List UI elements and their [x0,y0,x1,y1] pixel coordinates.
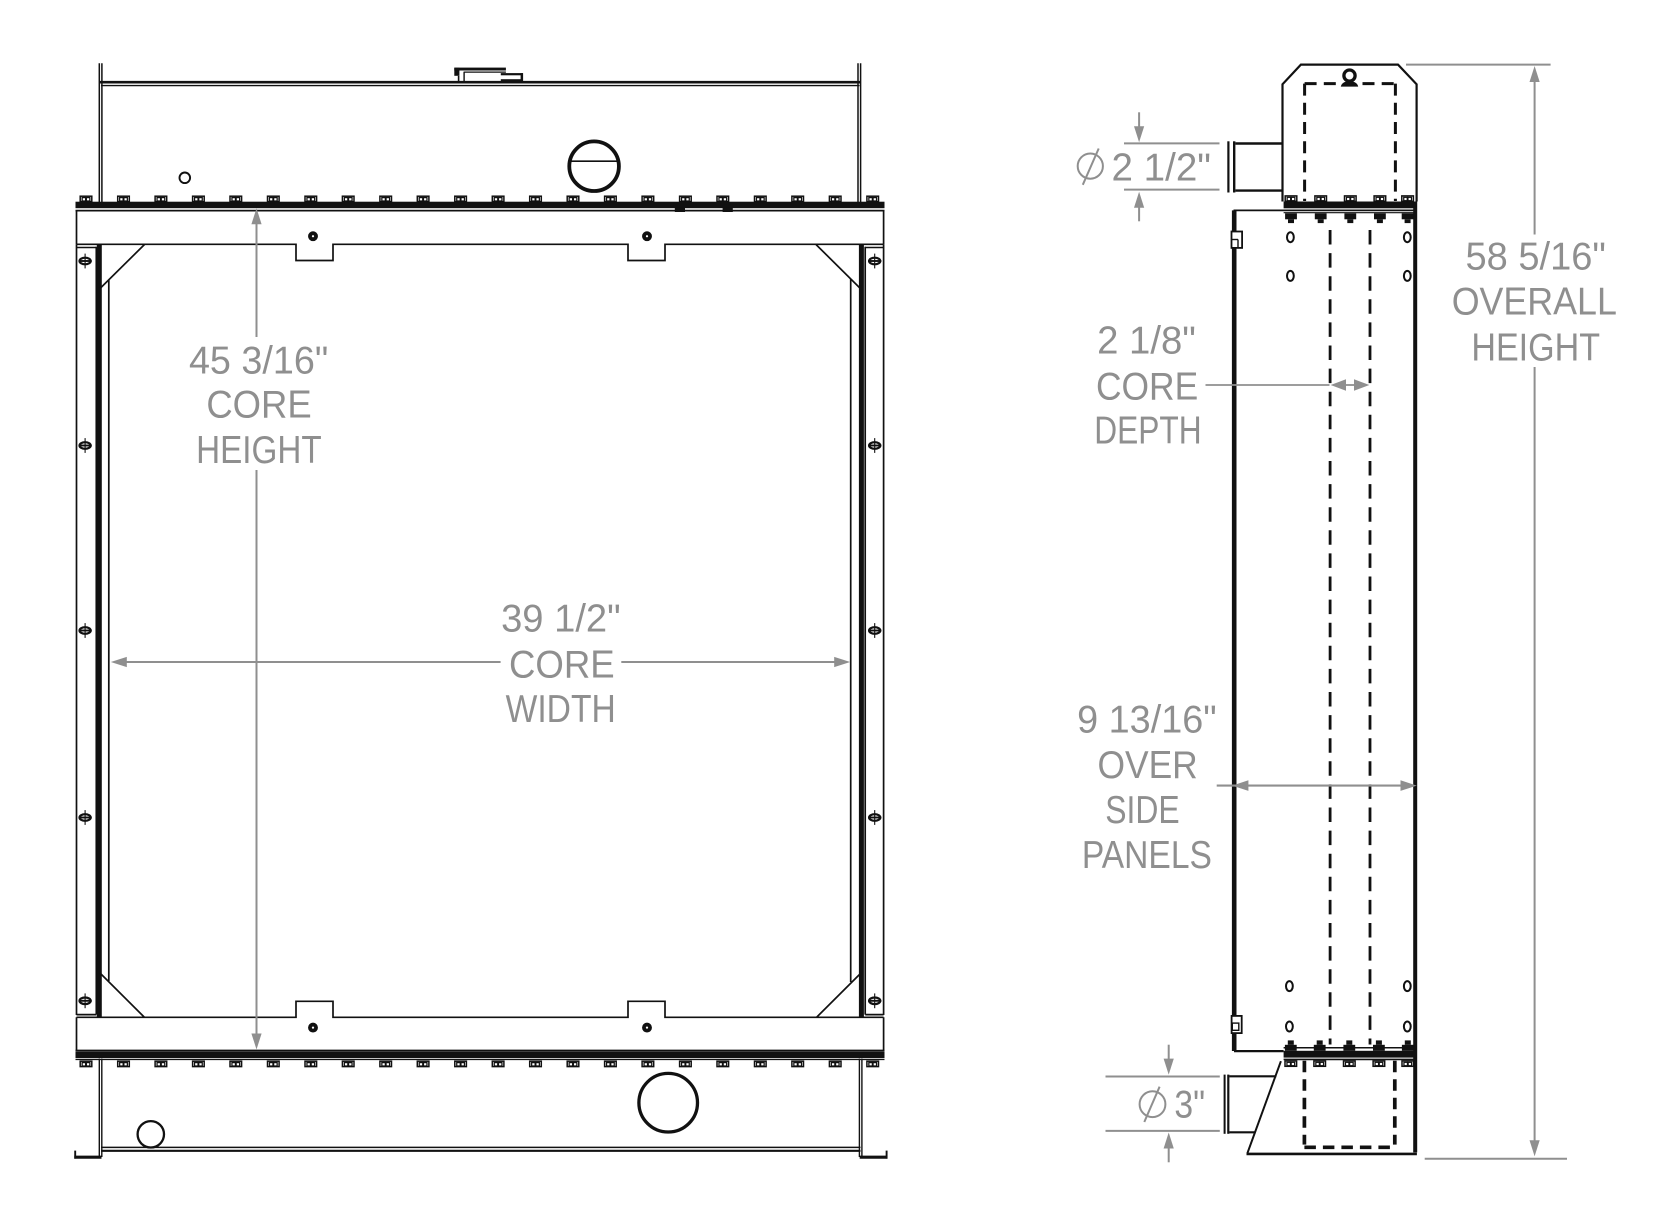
svg-text:45 3/16": 45 3/16" [189,339,328,382]
svg-text:2 1/8": 2 1/8" [1097,320,1196,363]
svg-text:HEIGHT: HEIGHT [196,429,322,472]
svg-text:58 5/16": 58 5/16" [1466,235,1606,278]
svg-text:CORE: CORE [1096,366,1198,409]
svg-text:39 1/2": 39 1/2" [501,598,621,641]
svg-text:SIDE: SIDE [1105,789,1179,832]
svg-text:2 1/2": 2 1/2" [1112,147,1212,190]
svg-text:WIDTH: WIDTH [506,688,616,731]
svg-text:3": 3" [1174,1084,1205,1127]
svg-text:CORE: CORE [206,384,311,427]
svg-text:HEIGHT: HEIGHT [1471,327,1600,370]
svg-text:PANELS: PANELS [1082,834,1212,877]
svg-text:OVER: OVER [1097,744,1197,787]
svg-text:DEPTH: DEPTH [1094,410,1201,453]
svg-text:9 13/16": 9 13/16" [1077,698,1217,741]
svg-text:CORE: CORE [509,643,615,686]
svg-text:OVERALL: OVERALL [1452,280,1617,323]
